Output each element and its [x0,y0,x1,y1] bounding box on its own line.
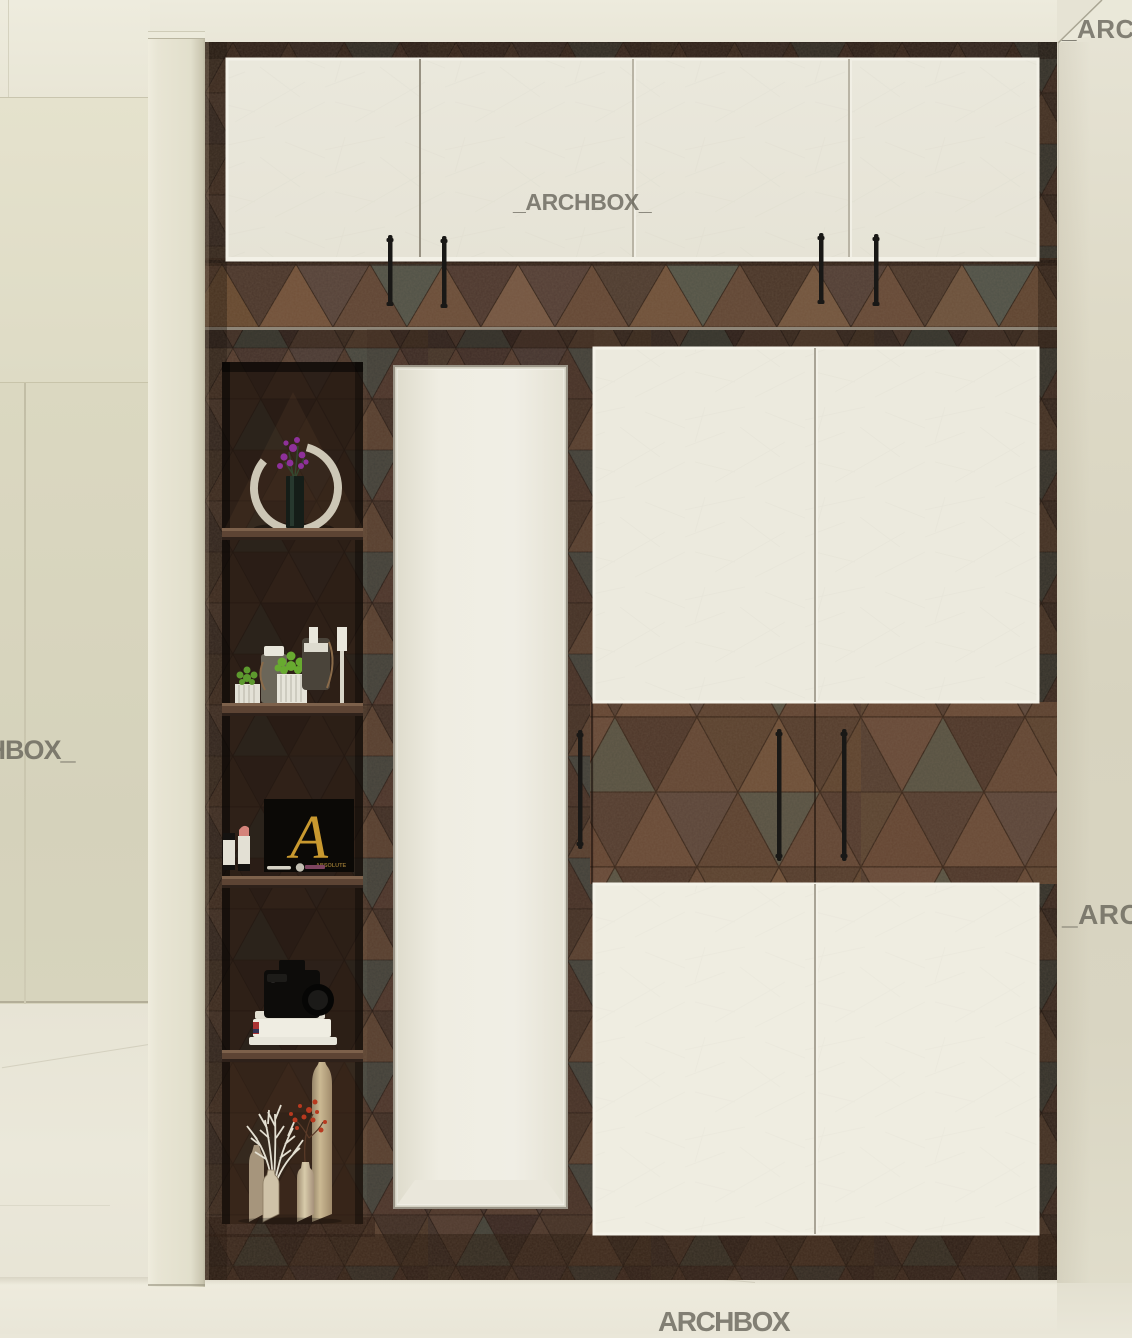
svg-text:A: A [286,804,329,872]
